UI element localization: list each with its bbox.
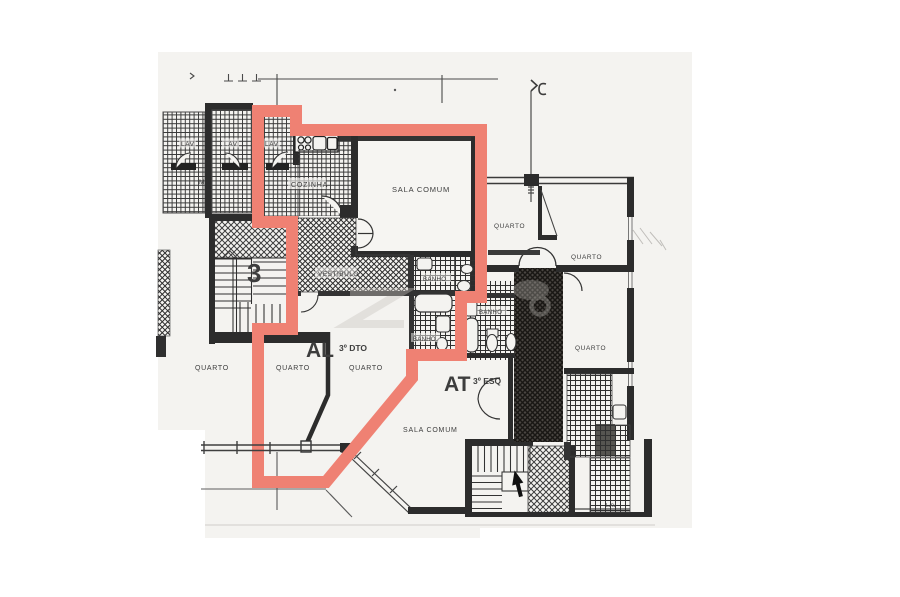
svg-text:QUARTO: QUARTO [276, 365, 310, 372]
svg-text:QUARTO: QUARTO [195, 365, 229, 372]
svg-text:LAV: LAV [606, 503, 616, 509]
svg-text:3º ESQ: 3º ESQ [473, 376, 502, 386]
svg-text:QUARTO: QUARTO [571, 254, 602, 261]
svg-text:AT: AT [444, 373, 471, 396]
svg-text:SALA COMUM: SALA COMUM [392, 185, 450, 194]
svg-text:LAV: LAV [224, 141, 238, 148]
svg-text:QUARTO: QUARTO [494, 223, 525, 230]
svg-text:3: 3 [247, 258, 261, 288]
svg-text:QUARTO: QUARTO [349, 365, 383, 372]
svg-text:LAV: LAV [181, 141, 195, 148]
svg-text:SALA COMUM: SALA COMUM [403, 427, 458, 434]
svg-text:M: M [199, 179, 204, 186]
svg-text:BANHO: BANHO [413, 337, 436, 343]
svg-text:QUARTO: QUARTO [575, 345, 606, 352]
svg-text:VESTIBULO: VESTIBULO [318, 271, 359, 278]
svg-text:BANHO: BANHO [423, 277, 446, 283]
svg-text:LAV: LAV [265, 141, 279, 148]
svg-text:3º DTO: 3º DTO [339, 343, 367, 353]
svg-text:AL: AL [306, 339, 334, 362]
svg-text:BANHO: BANHO [479, 310, 502, 316]
svg-text:COZINHA: COZINHA [291, 182, 328, 189]
